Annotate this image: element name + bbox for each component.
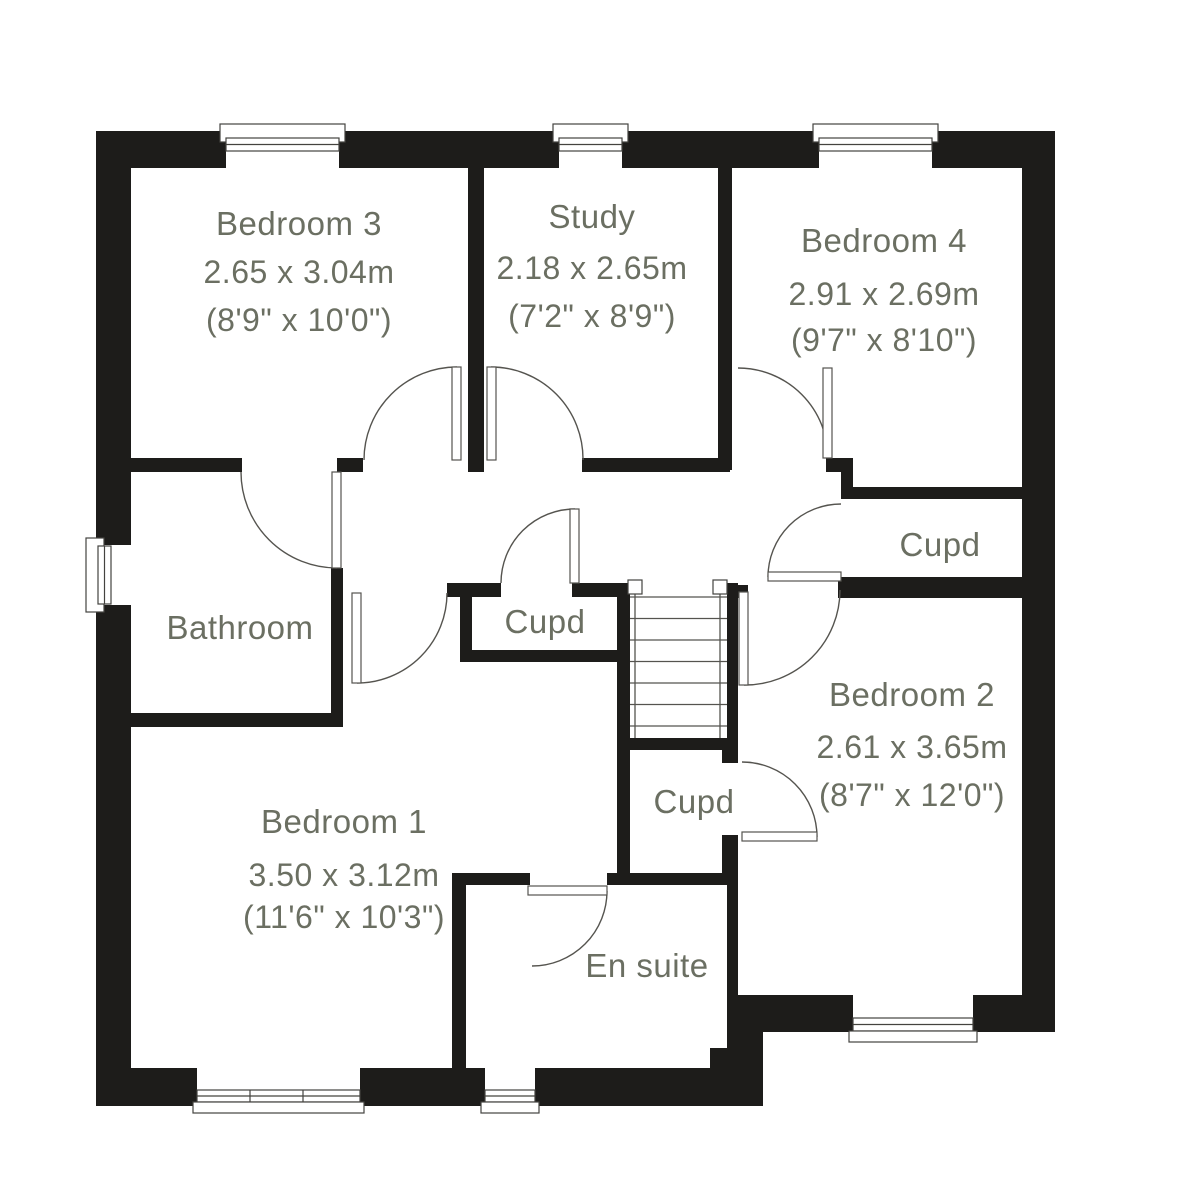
room-dim-metric-bedroom2: 2.61 x 3.65m bbox=[817, 729, 1008, 765]
room-dim-imperial-bedroom4: (9'7" x 8'10") bbox=[791, 322, 977, 358]
room-dim-metric-bedroom1: 3.50 x 3.12m bbox=[249, 857, 440, 893]
door-bathroom bbox=[241, 472, 341, 568]
floor-plan-page: Bedroom 3 2.65 x 3.04m (8'9" x 10'0") St… bbox=[0, 0, 1200, 1200]
room-label-cupboard-hall: Cupd bbox=[505, 603, 586, 640]
room-dim-metric-bedroom3: 2.65 x 3.04m bbox=[204, 254, 395, 290]
room-label-ensuite: En suite bbox=[585, 947, 708, 984]
room-label-bedroom1: Bedroom 1 bbox=[261, 803, 427, 840]
room-dim-imperial-bedroom2: (8'7" x 12'0") bbox=[819, 777, 1005, 813]
door-bedroom4 bbox=[738, 368, 832, 458]
room-label-cupboard-bedroom2: Cupd bbox=[654, 783, 735, 820]
window-bedroom4 bbox=[813, 124, 938, 168]
room-label-study: Study bbox=[549, 198, 636, 235]
door-study bbox=[487, 367, 583, 460]
window-ensuite bbox=[481, 1064, 539, 1113]
room-label-bedroom2: Bedroom 2 bbox=[829, 676, 995, 713]
room-label-cupboard-landing: Cupd bbox=[900, 526, 981, 563]
room-dim-imperial-study: (7'2" x 8'9") bbox=[508, 298, 676, 334]
room-dim-metric-bedroom4: 2.91 x 2.69m bbox=[789, 276, 980, 312]
floor-plan: Bedroom 3 2.65 x 3.04m (8'9" x 10'0") St… bbox=[0, 0, 1200, 1200]
door-cupboard-bedroom2 bbox=[742, 762, 817, 841]
stair-newel-right bbox=[713, 580, 727, 594]
door-bedroom2 bbox=[739, 590, 840, 685]
door-cupboard-hall bbox=[501, 509, 579, 583]
window-study bbox=[553, 124, 628, 168]
stairs bbox=[628, 580, 727, 738]
door-bedroom1 bbox=[352, 593, 447, 683]
stair-newel-left bbox=[628, 580, 642, 594]
door-bedroom3 bbox=[364, 367, 461, 460]
window-bathroom bbox=[86, 538, 131, 612]
room-label-bedroom3: Bedroom 3 bbox=[216, 205, 382, 242]
window-bedroom2 bbox=[849, 993, 977, 1042]
room-dim-imperial-bedroom3: (8'9" x 10'0") bbox=[206, 302, 392, 338]
room-label-bathroom: Bathroom bbox=[166, 609, 313, 646]
room-dim-metric-study: 2.18 x 2.65m bbox=[497, 250, 688, 286]
room-dim-imperial-bedroom1: (11'6" x 10'3") bbox=[243, 899, 445, 935]
window-bedroom1 bbox=[193, 1064, 364, 1113]
window-bedroom3 bbox=[220, 124, 345, 168]
room-label-bedroom4: Bedroom 4 bbox=[801, 222, 967, 259]
door-cupboard-landing bbox=[768, 504, 841, 581]
